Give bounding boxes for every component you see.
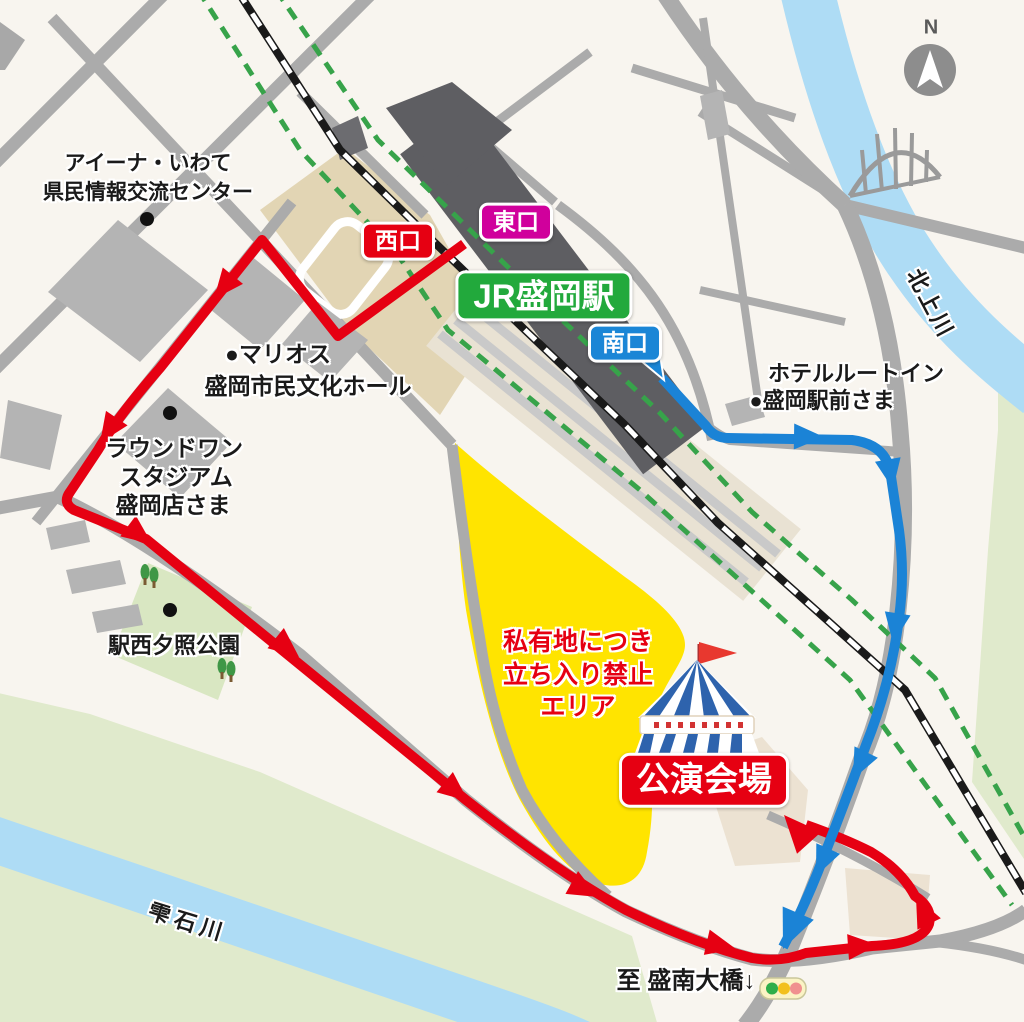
- venue-badge: 公演会場: [619, 753, 789, 808]
- north-compass-icon: [904, 44, 956, 96]
- park-label: 駅西夕照公園: [108, 628, 240, 660]
- aiina-label-line1: アイーナ・いわて: [65, 147, 232, 177]
- station-badge: JR盛岡駅: [455, 270, 632, 321]
- traffic-light-icon: [760, 978, 806, 999]
- no-entry-label-line2: 立ち入り禁止: [503, 655, 653, 691]
- marios-label-line2: 盛岡市民文化ホール: [205, 367, 412, 401]
- bottom-direction-note: 至 盛南大橋↓: [617, 961, 756, 996]
- round1-label-line3: 盛岡店さま: [116, 486, 231, 520]
- south-exit-badge: 南口: [588, 324, 662, 363]
- compass-n-label: N: [924, 17, 938, 40]
- marios-label-line1: ●マリオス: [225, 335, 331, 369]
- access-map: アイーナ・いわて 県民情報交流センター ●マリオス 盛岡市民文化ホール ラウンド…: [0, 0, 1024, 1022]
- hotel-label-line2: ●盛岡駅前さま: [749, 383, 894, 415]
- aiina-label-line2: 県民情報交流センター: [43, 176, 253, 206]
- west-exit-badge: 西口: [361, 222, 435, 261]
- no-entry-label-line3: エリア: [540, 687, 615, 723]
- no-entry-label-line1: 私有地につき: [503, 622, 653, 658]
- east-exit-badge: 東口: [479, 203, 553, 242]
